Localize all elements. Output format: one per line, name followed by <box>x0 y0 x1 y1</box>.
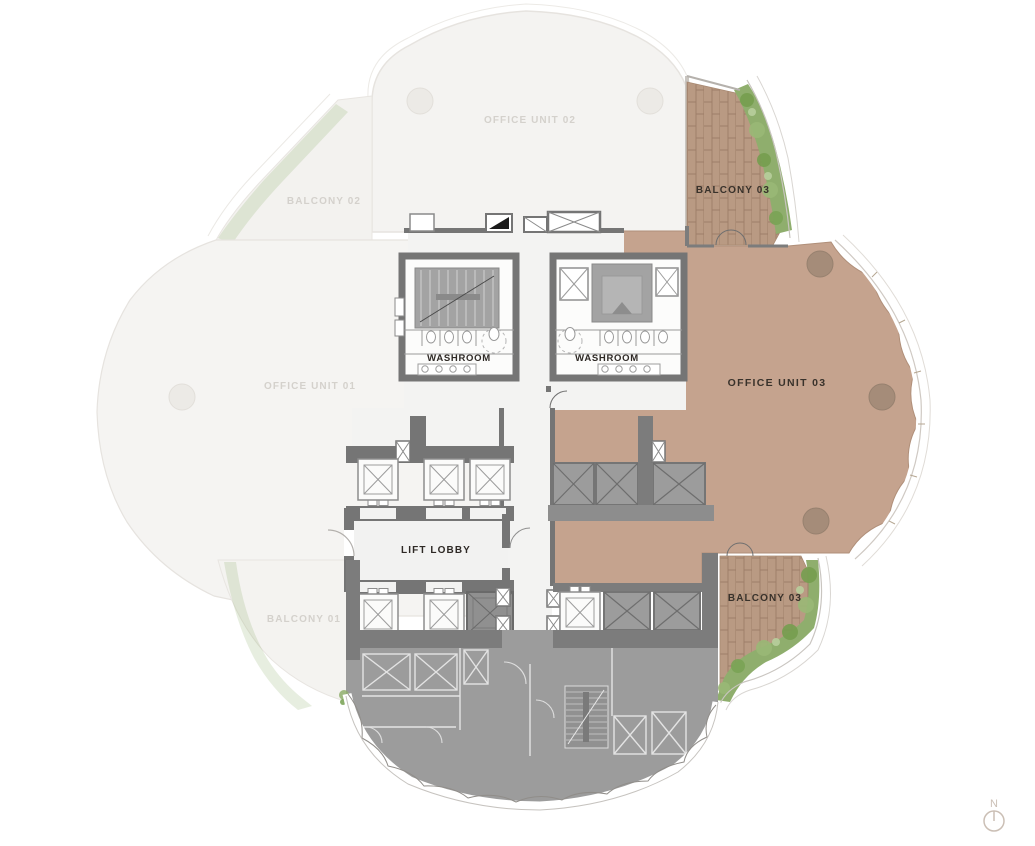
floor-plan-drawing: OFFICE UNIT 02 BALCONY 02 OFFICE UNIT 01… <box>0 0 1035 846</box>
office-unit-03-label: OFFICE UNIT 03 <box>728 377 827 389</box>
balcony-03-upper-group <box>685 76 799 246</box>
office-unit-02-label: OFFICE UNIT 02 <box>484 115 576 126</box>
lift <box>470 459 510 506</box>
lift <box>424 589 464 636</box>
balcony-03-upper-label: BALCONY 03 <box>696 185 770 196</box>
column <box>807 251 833 277</box>
washroom-right-label: WASHROOM <box>575 353 639 364</box>
column <box>803 508 829 534</box>
lift <box>358 459 398 506</box>
balcony-03-lower-group <box>702 543 831 710</box>
washroom-left-label: WASHROOM <box>427 353 491 364</box>
north-compass: N <box>984 798 1004 831</box>
lift <box>560 587 600 634</box>
floor-plan-canvas: OFFICE UNIT 02 BALCONY 02 OFFICE UNIT 01… <box>0 0 1035 846</box>
lift <box>424 459 464 506</box>
column <box>637 88 663 114</box>
annex-lifts <box>553 583 706 633</box>
balcony-02-label: BALCONY 02 <box>287 196 361 207</box>
office-unit-01-label: OFFICE UNIT 01 <box>264 381 356 392</box>
stair <box>565 686 608 748</box>
column <box>169 384 195 410</box>
column <box>407 88 433 114</box>
balcony-03-lower-label: BALCONY 03 <box>728 593 802 604</box>
lift-lobby-label: LIFT LOBBY <box>401 545 471 556</box>
north-label: N <box>990 798 998 810</box>
lift <box>358 589 398 636</box>
balcony-01-label: BALCONY 01 <box>267 614 341 625</box>
column <box>869 384 895 410</box>
